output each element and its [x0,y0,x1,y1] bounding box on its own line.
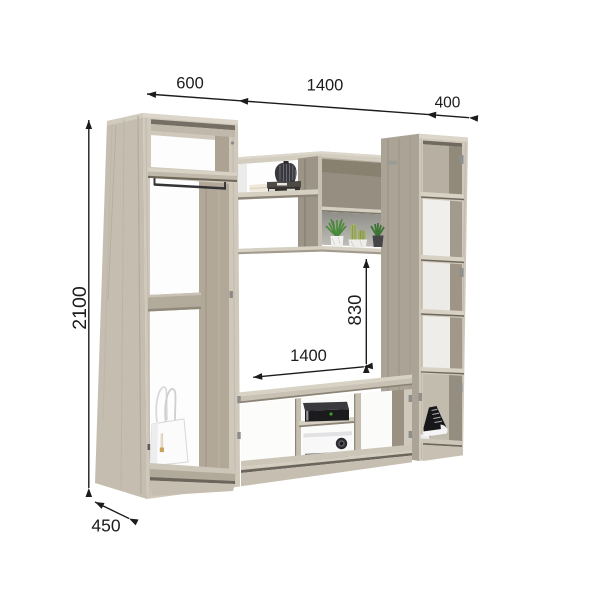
svg-text:2100: 2100 [69,286,91,330]
svg-text:600: 600 [176,75,204,93]
svg-text:400: 400 [435,95,461,112]
svg-text:450: 450 [91,516,120,536]
svg-text:830: 830 [344,295,365,326]
svg-text:1400: 1400 [290,347,327,365]
svg-text:1400: 1400 [307,77,344,95]
